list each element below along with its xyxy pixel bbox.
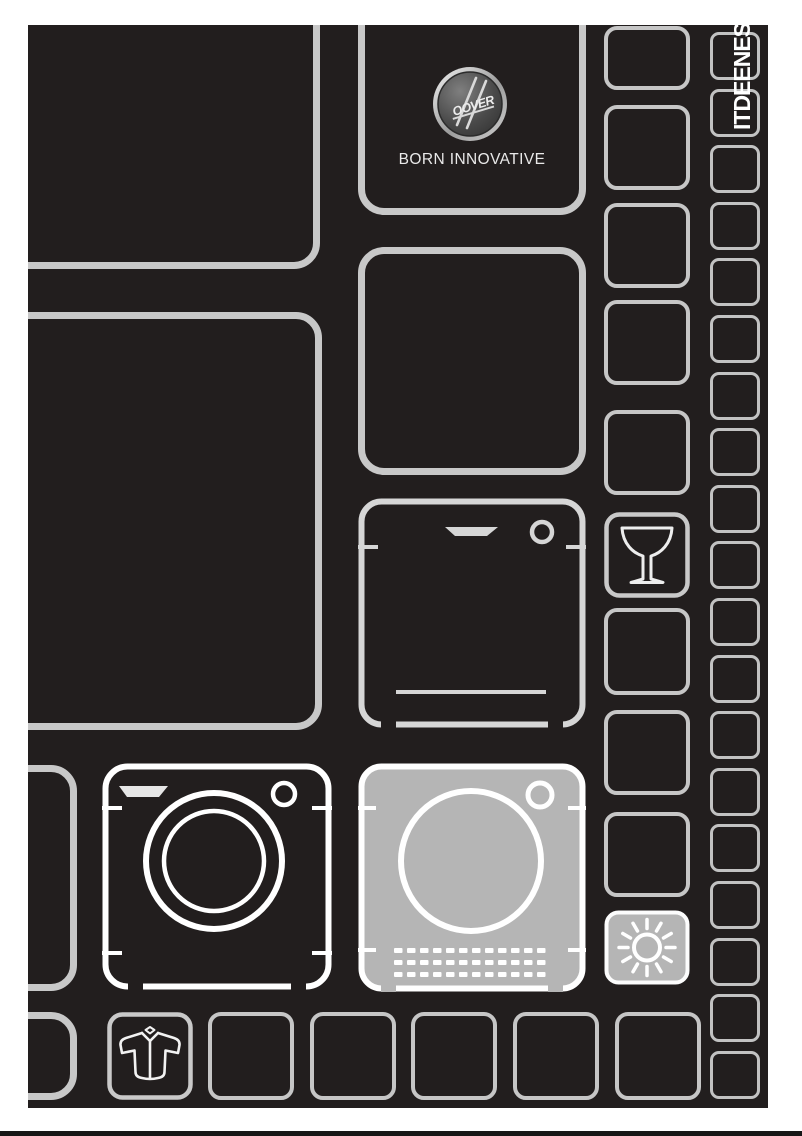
grid-cell <box>710 938 760 986</box>
grid-cell <box>513 1012 599 1100</box>
grid-cell <box>604 203 690 288</box>
grid-panel <box>358 247 586 475</box>
brand-tagline: BORN INNOVATIVE <box>358 151 586 169</box>
grid-cell <box>710 315 760 363</box>
grid-panel <box>28 765 77 991</box>
dishwasher-icon <box>358 498 586 728</box>
grid-cell <box>310 1012 396 1100</box>
grid-cell <box>615 1012 701 1100</box>
hoover-logo-badge: OOVER <box>430 64 510 144</box>
tumble-dryer-icon <box>358 763 586 992</box>
grid-cell <box>710 485 760 533</box>
grid-panel <box>28 312 322 730</box>
grid-cell <box>710 655 760 703</box>
grid-cell <box>710 711 760 759</box>
grid-cell <box>710 881 760 929</box>
grid-cell <box>208 1012 294 1100</box>
grid-cell <box>710 202 760 250</box>
grid-cell <box>604 608 690 695</box>
grid-cell <box>710 428 760 476</box>
dishwasher-cell <box>358 498 586 728</box>
language-codes: ITDEENES <box>729 25 756 130</box>
grid-panel <box>28 25 320 269</box>
grid-cell <box>710 824 760 872</box>
grid-cell <box>710 258 760 306</box>
grid-cell <box>411 1012 497 1100</box>
grid-cell <box>604 105 690 190</box>
grid-cell <box>710 372 760 420</box>
grid-cell <box>604 812 690 897</box>
wine-glass-icon <box>604 512 690 598</box>
shirt-cell <box>107 1012 193 1100</box>
grid-cell <box>710 768 760 816</box>
manual-cover-page: OOVER BORN INNOVATIVE <box>0 0 802 1136</box>
tumble-dryer-cell <box>358 763 586 992</box>
wine-glass-cell <box>604 512 690 598</box>
grid-cell <box>710 1051 760 1099</box>
grid-cell <box>604 300 690 385</box>
grid-cell <box>710 598 760 646</box>
washing-machine-cell <box>102 763 332 990</box>
footer-rule <box>0 1131 802 1136</box>
cover-grid: OOVER BORN INNOVATIVE <box>28 25 768 1108</box>
sun-icon <box>604 910 690 985</box>
hoover-badge-icon: OOVER <box>430 64 510 144</box>
shirt-icon <box>107 1012 193 1100</box>
grid-cell <box>604 410 690 495</box>
washing-machine-icon <box>102 763 332 990</box>
grid-cell <box>710 994 760 1042</box>
grid-cell <box>604 710 690 795</box>
grid-cell <box>604 26 690 90</box>
grid-cell <box>710 541 760 589</box>
sun-cell <box>604 910 690 985</box>
grid-panel <box>28 1012 77 1100</box>
grid-cell <box>710 145 760 193</box>
